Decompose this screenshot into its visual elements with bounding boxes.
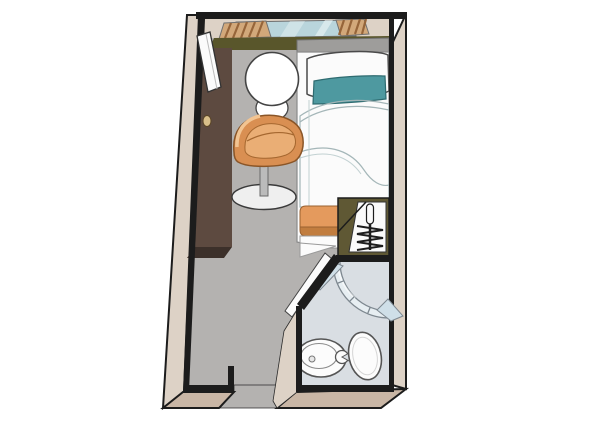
hanging-closet — [338, 198, 389, 256]
bathroom-wall-top — [336, 255, 389, 262]
swivel-chair — [232, 115, 303, 209]
clothes-rod-cap — [367, 204, 374, 224]
bottom-wall-left — [183, 385, 234, 392]
floor-plan — [0, 0, 600, 422]
bottom-wall-left-end-cap — [228, 366, 234, 392]
table-top — [246, 53, 299, 106]
right-wall — [389, 19, 394, 385]
bottom-wall-right — [296, 385, 394, 392]
wardrobe-knob — [203, 116, 211, 127]
bed-accent-pillow — [313, 76, 386, 104]
bathroom-wall-vertical — [296, 306, 302, 392]
top-wall — [196, 12, 407, 19]
washbasin-drain — [309, 356, 315, 362]
floor-plan-page — [0, 0, 600, 422]
right-outer-wall-face — [392, 14, 406, 389]
